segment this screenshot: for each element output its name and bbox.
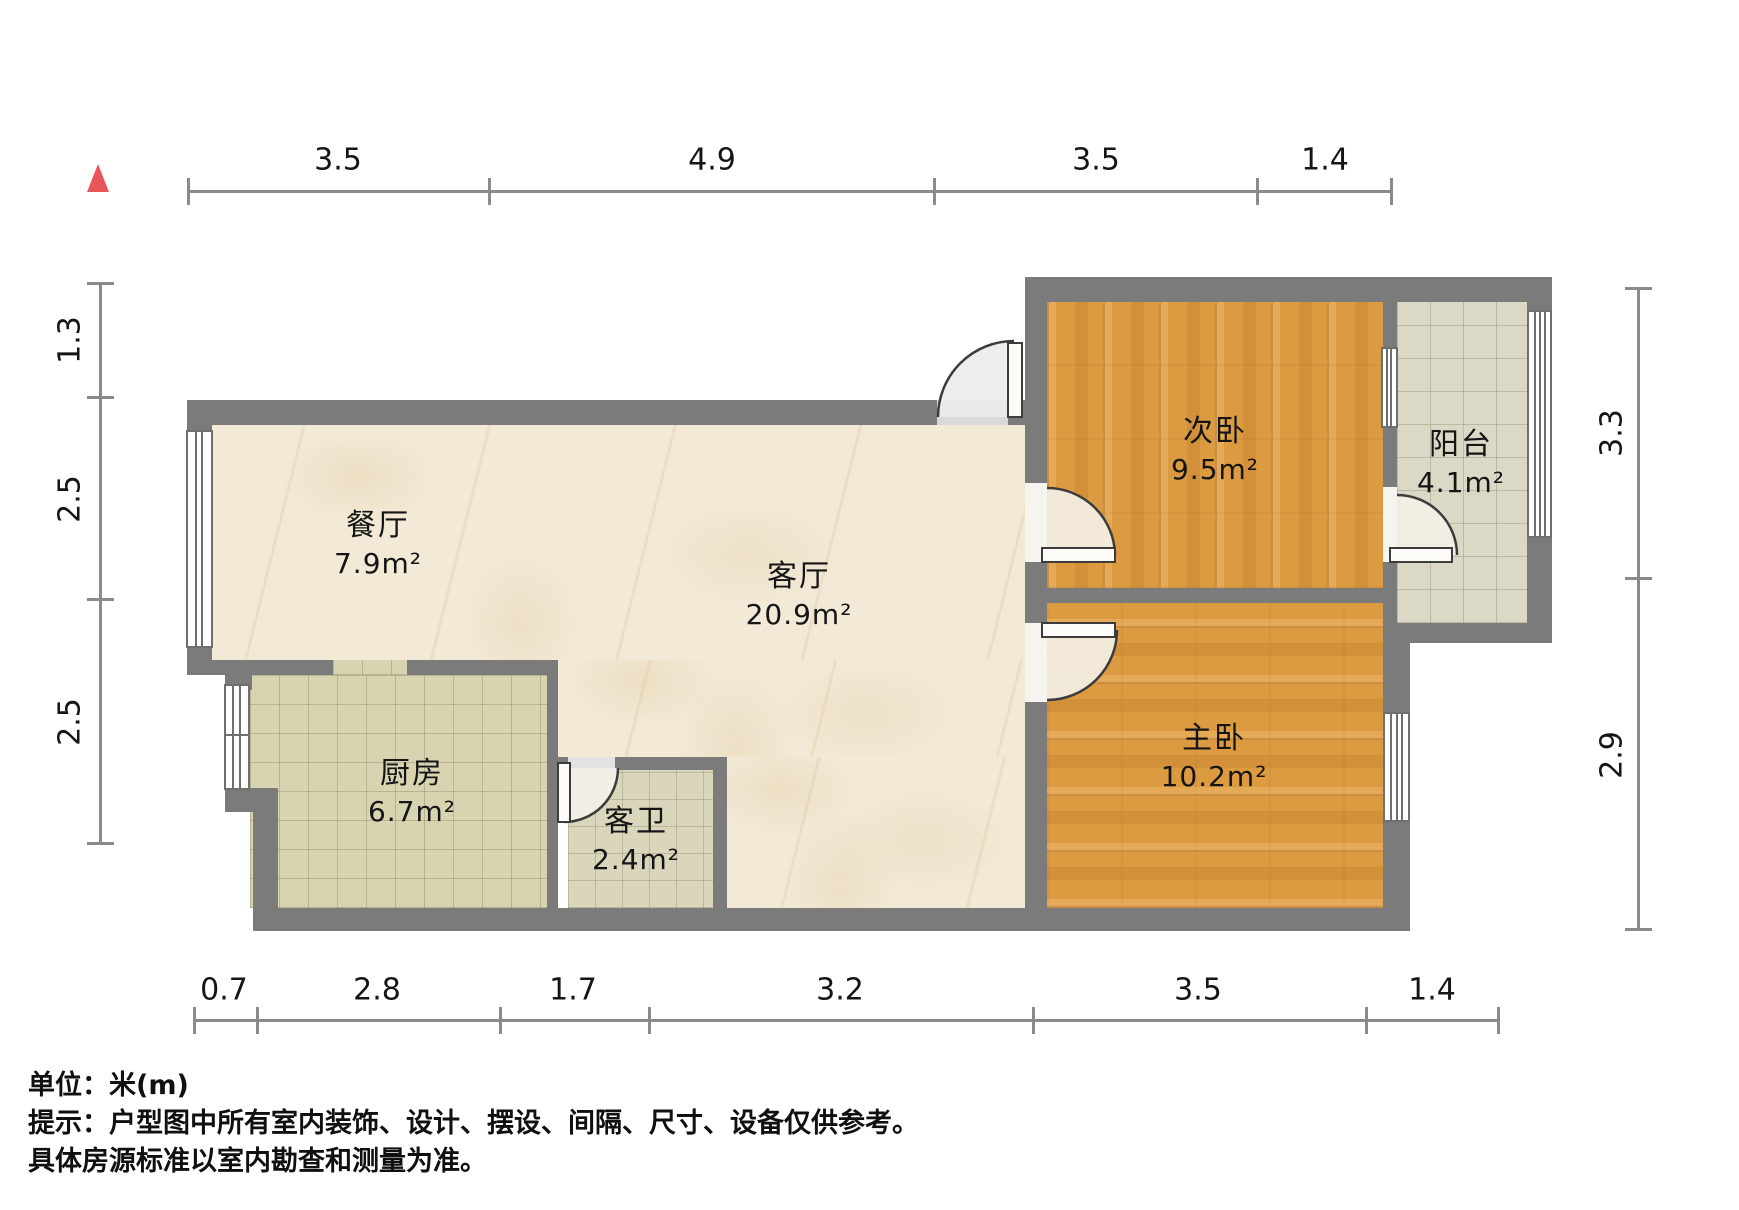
kitchen-window xyxy=(224,684,250,790)
room-area: 2.4m² xyxy=(592,843,680,876)
dim-bottom-3: 1.7 xyxy=(549,973,597,1008)
dining-window xyxy=(186,430,213,648)
room-name: 阳台 xyxy=(1417,419,1505,463)
master-bedroom-window xyxy=(1383,712,1410,822)
room-name: 主卧 xyxy=(1161,713,1268,757)
wall-bedroom-divider xyxy=(1047,588,1397,603)
wall-living-bedroom-mid xyxy=(1025,562,1047,623)
dim-left-3: 2.5 xyxy=(53,698,88,746)
dim-bottom-6: 1.4 xyxy=(1408,973,1456,1008)
dim-top-2: 4.9 xyxy=(688,143,736,178)
room-name: 客卫 xyxy=(592,796,680,840)
dim-top-3: 3.5 xyxy=(1072,143,1120,178)
dim-left-1: 1.3 xyxy=(53,316,88,364)
room-name: 厨房 xyxy=(368,748,456,792)
room-label-second-bedroom: 次卧 9.5m² xyxy=(1171,406,1259,486)
room-label-balcony: 阳台 4.1m² xyxy=(1417,419,1505,499)
wall-bathroom-right xyxy=(713,757,727,908)
dim-bottom-1: 0.7 xyxy=(200,973,248,1008)
floorplan-canvas: 餐厅 7.9m² 客厅 20.9m² 厨房 6.7m² 客卫 2.4m² 次卧 … xyxy=(0,0,1739,1210)
room-name: 餐厅 xyxy=(334,500,422,544)
dim-right-1: 3.3 xyxy=(1595,409,1630,457)
wall-kitchen-top xyxy=(407,660,558,675)
floor-living-middle xyxy=(558,660,1025,757)
wall-dining-bottom xyxy=(187,660,333,675)
dim-bottom-5: 3.5 xyxy=(1174,973,1222,1008)
opening-entry xyxy=(937,400,1008,425)
wall-bathroom-top xyxy=(615,757,727,770)
room-label-kitchen: 厨房 6.7m² xyxy=(368,748,456,828)
room-name: 次卧 xyxy=(1171,406,1259,450)
dim-bottom-2: 2.8 xyxy=(353,973,401,1008)
wall-top-main-left xyxy=(187,400,937,425)
second-bedroom-balcony-window xyxy=(1381,347,1398,428)
footer-disclaimer-1: 提示：户型图中所有室内装饰、设计、摆设、间隔、尺寸、设备仅供参考。 xyxy=(28,1101,919,1140)
wall-block-top xyxy=(1025,277,1552,302)
room-area: 7.9m² xyxy=(334,547,422,580)
room-area: 6.7m² xyxy=(368,795,456,828)
dimension-line-top xyxy=(187,190,1393,193)
room-label-living: 客厅 20.9m² xyxy=(746,551,853,631)
dimension-line-left xyxy=(99,282,102,845)
room-area: 9.5m² xyxy=(1171,453,1259,486)
footer-disclaimer-2: 具体房源标准以室内勘查和测量为准。 xyxy=(28,1139,487,1178)
room-area: 10.2m² xyxy=(1161,760,1268,793)
room-name: 客厅 xyxy=(746,551,853,595)
wall-living-bedroom-lower xyxy=(1025,702,1047,908)
wall-bathroom-top-stub xyxy=(558,757,568,770)
dimension-line-bottom xyxy=(193,1019,1500,1022)
room-area: 4.1m² xyxy=(1417,466,1505,499)
opening-bathroom xyxy=(568,757,615,770)
dimension-line-right xyxy=(1637,287,1640,931)
dim-bottom-4: 3.2 xyxy=(816,973,864,1008)
opening-master-bedroom xyxy=(1025,623,1047,702)
dim-left-2: 2.5 xyxy=(53,475,88,523)
room-label-dining: 餐厅 7.9m² xyxy=(334,500,422,580)
wall-bedroom-balcony-lower xyxy=(1383,562,1397,623)
dim-top-1: 3.5 xyxy=(314,143,362,178)
room-label-bathroom: 客卫 2.4m² xyxy=(592,796,680,876)
wall-living-bedroom-upper xyxy=(1025,302,1047,483)
floor-living-lower xyxy=(727,757,1025,908)
balcony-window xyxy=(1527,310,1552,538)
dim-top-4: 1.4 xyxy=(1301,143,1349,178)
room-area: 20.9m² xyxy=(746,598,853,631)
room-label-master-bedroom: 主卧 10.2m² xyxy=(1161,713,1268,793)
dim-right-2: 2.9 xyxy=(1595,731,1630,779)
wall-bottom xyxy=(253,908,1410,931)
north-arrow-icon xyxy=(87,164,109,192)
opening-balcony xyxy=(1383,487,1397,562)
footer-unit-note: 单位：米(m) xyxy=(28,1063,189,1102)
wall-kitchen-corner xyxy=(225,788,278,812)
floor-kitchen-entry xyxy=(333,660,407,675)
opening-second-bedroom xyxy=(1025,483,1047,562)
wall-kitchen-right xyxy=(547,660,558,908)
